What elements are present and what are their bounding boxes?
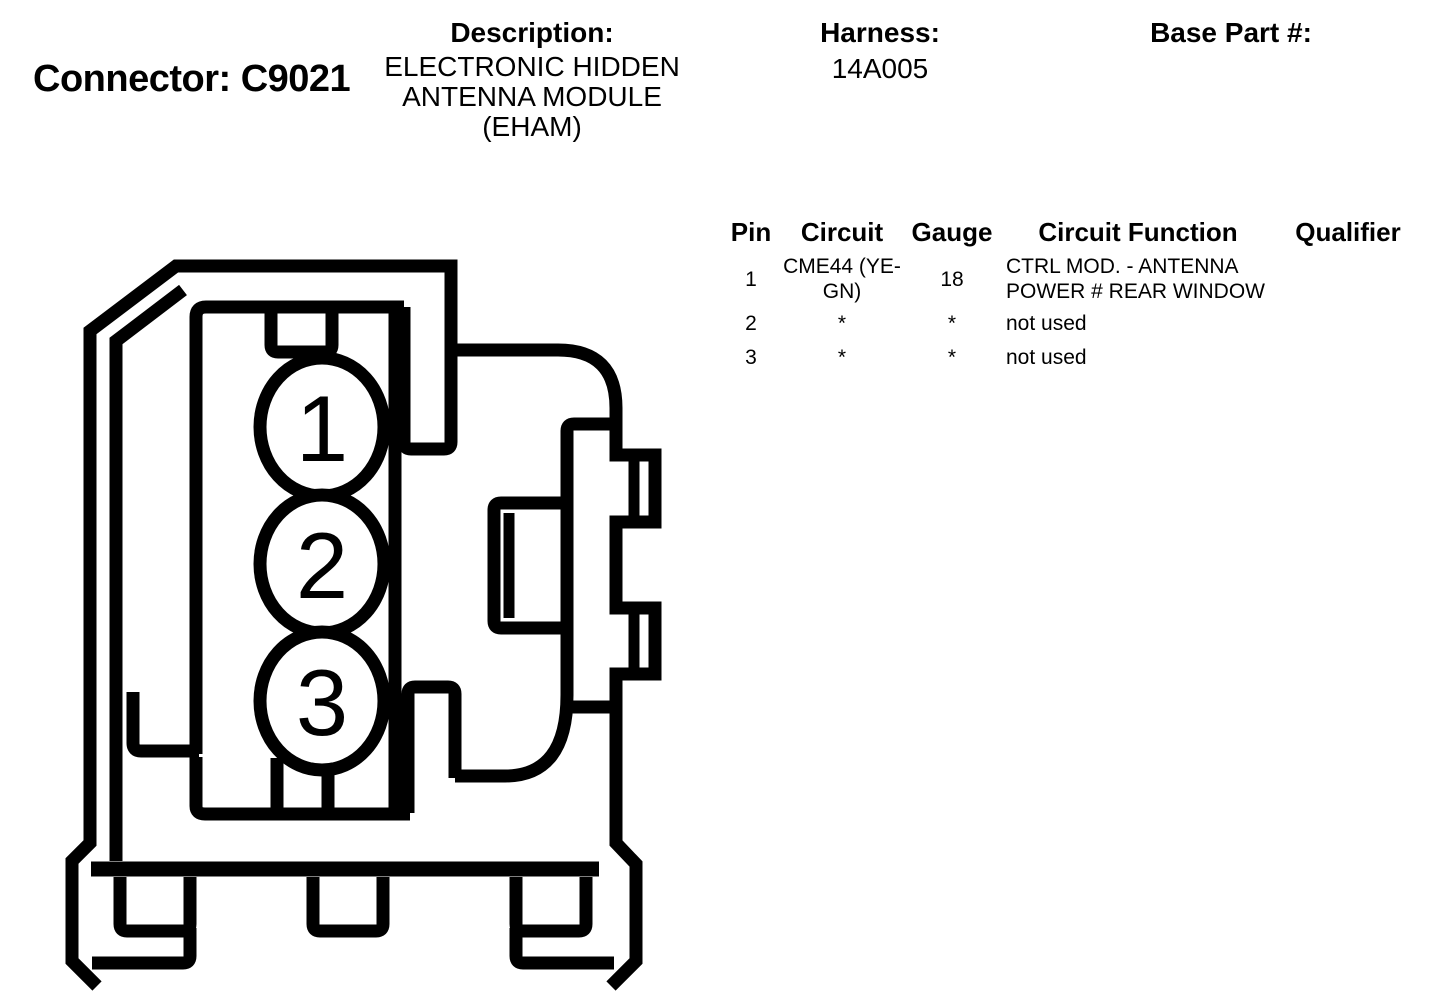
cavity-bottom-left-step — [133, 692, 199, 751]
keyway-slot-top — [271, 309, 332, 352]
pin-3-label: 3 — [296, 650, 348, 755]
keyway-slot-top-right — [404, 307, 451, 449]
rail-notch-middle — [313, 877, 383, 931]
rail-notch-left — [120, 877, 190, 931]
inner-wall — [116, 290, 183, 861]
latch-bar — [455, 424, 616, 776]
pin-2-label: 2 — [296, 513, 348, 618]
pin-1-label: 1 — [296, 376, 348, 481]
rail-notch-right — [516, 877, 586, 931]
keyway-slot-bottom-right — [408, 687, 455, 813]
connector-diagram: 1 2 3 — [0, 0, 1456, 1002]
